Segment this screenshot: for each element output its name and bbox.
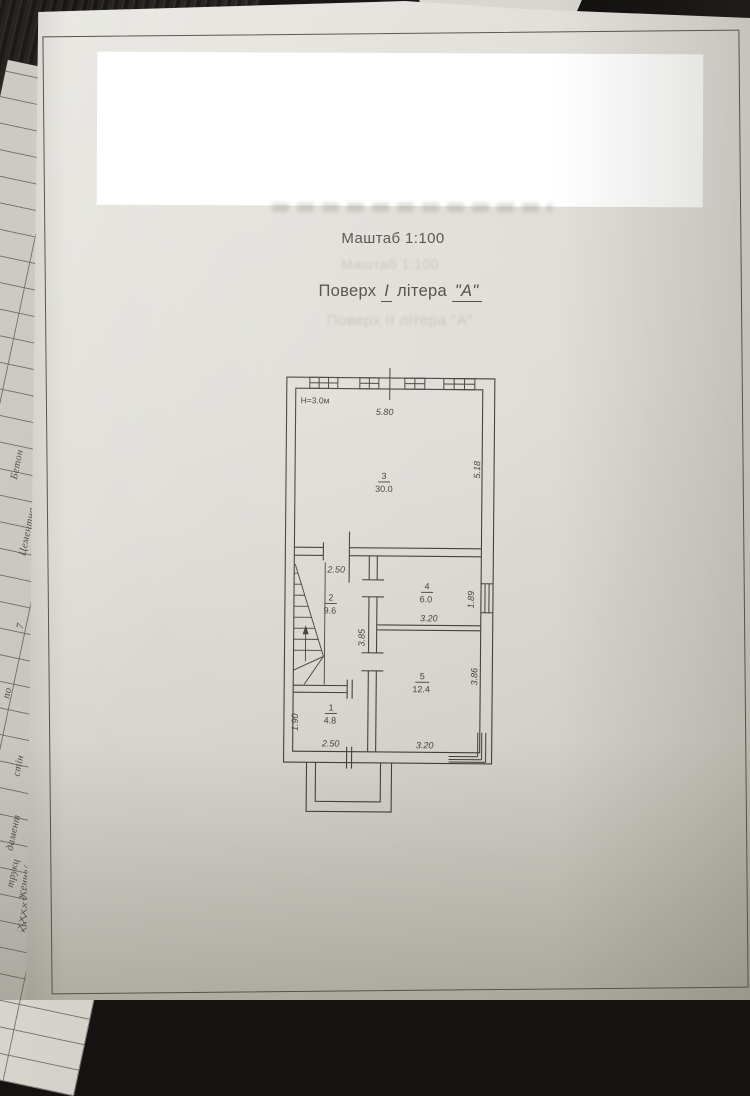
dim-room1-left: 1.90 <box>290 713 300 731</box>
dim-room2-top: 2.50 <box>326 564 345 574</box>
scale-title-ghost: Маштаб 1:100 <box>290 256 490 272</box>
dim-room1-bottom: 2.50 <box>321 738 340 748</box>
letter-value: "А" <box>452 282 482 302</box>
room-number: 1 <box>328 702 333 712</box>
dimension-labels: Н=3.0м 5.80 5.18 2.50 3.85 1.89 3.20 3.8… <box>290 395 483 751</box>
walls <box>283 377 494 770</box>
bleedthrough-text-line <box>272 203 552 212</box>
height-note: Н=3.0м <box>301 395 330 405</box>
room-area: 4.8 <box>324 715 337 725</box>
letter-word: літера <box>397 282 447 300</box>
floor-word: Поверх <box>318 282 376 300</box>
room-labels: 3 30.0 2 9.6 4 6.0 5 12.4 1 4.8 <box>323 470 434 726</box>
table-cell-label: дамент <box>5 814 23 852</box>
table-cell-label: 7 <box>15 622 27 630</box>
dim-room5-right: 3.86 <box>469 668 479 686</box>
dim-room4-window: 1.89 <box>466 591 476 609</box>
scale-title: Маштаб 1:100 <box>293 230 493 247</box>
room-area: 9.6 <box>324 605 337 615</box>
porch <box>306 762 391 812</box>
floor-title-ghost: Поверх ІІ літера "А" <box>295 312 505 329</box>
room-area: 30.0 <box>375 484 393 494</box>
redaction-box <box>97 52 704 208</box>
dim-room5-bottom: 3.20 <box>416 740 434 750</box>
table-cell-label: стін <box>11 754 26 777</box>
dim-room4-bottom: 3.20 <box>420 613 438 623</box>
room-number: 3 <box>381 471 386 481</box>
room-number: 4 <box>425 581 430 591</box>
room-area: 6.0 <box>420 594 433 604</box>
floor-plan-drawing: Н=3.0м 5.80 5.18 2.50 3.85 1.89 3.20 3.8… <box>281 364 499 826</box>
dim-room3-right: 5.18 <box>472 461 482 479</box>
windows <box>308 367 495 613</box>
room-number: 2 <box>328 592 333 602</box>
room-area: 12.4 <box>412 684 430 694</box>
dim-room2-wall: 3.85 <box>357 628 367 647</box>
stair-direction-arrow <box>303 625 309 634</box>
room-number: 5 <box>420 671 425 681</box>
table-cell-label: по <box>1 687 14 700</box>
dim-top-width: 5.80 <box>376 407 394 417</box>
floor-numeral: І <box>381 282 392 302</box>
floor-title: Поверх І літера "А" <box>300 282 500 301</box>
table-cell-label: Бетон <box>9 449 26 481</box>
staircase <box>293 562 325 684</box>
